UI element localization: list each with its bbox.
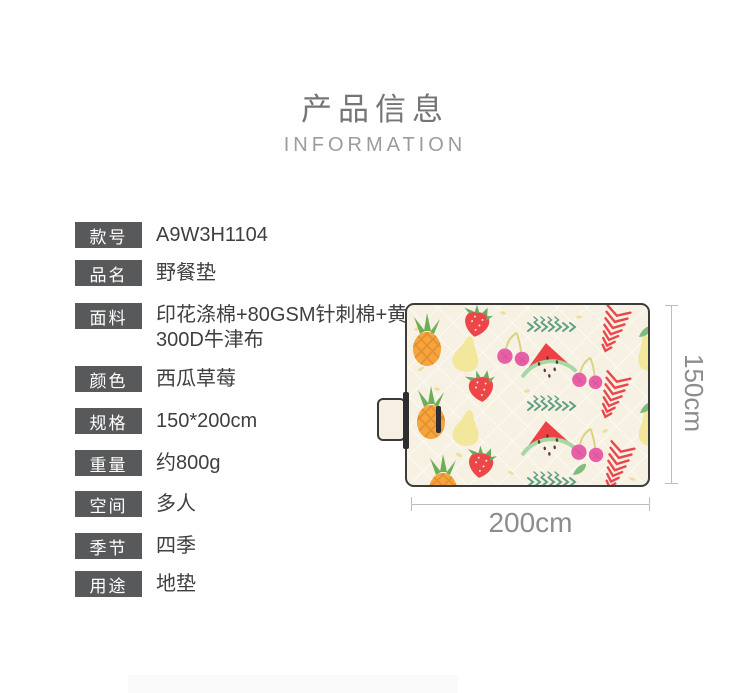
height-dimension-cap-bottom <box>665 483 678 484</box>
width-dimension-label: 200cm <box>411 507 650 539</box>
height-dimension-line <box>671 305 672 484</box>
height-dimension-label: 150cm <box>678 354 709 432</box>
page-title: 产品信息 <box>0 84 750 129</box>
spec-row-model: 款号 A9W3H1104 <box>75 222 268 248</box>
spec-label: 品名 <box>75 260 142 286</box>
spec-label: 规格 <box>75 408 142 434</box>
spec-row-weight: 重量 约800g <box>75 450 221 476</box>
spec-label: 颜色 <box>75 366 142 392</box>
spec-value: A9W3H1104 <box>156 222 268 248</box>
spec-value: 约800g <box>156 450 221 476</box>
spec-label: 面料 <box>75 303 142 329</box>
spec-value: 西瓜草莓 <box>156 366 236 392</box>
product-info-page: 产品信息 INFORMATION 款号 A9W3H1104 品名 野餐垫 面料 … <box>0 0 750 693</box>
spec-value: 野餐垫 <box>156 260 216 286</box>
spec-value: 地垫 <box>156 571 196 597</box>
product-image <box>405 303 650 487</box>
spec-value: 四季 <box>156 533 196 559</box>
spec-row-capacity: 空间 多人 <box>75 491 196 517</box>
spec-label: 季节 <box>75 533 142 559</box>
spec-row-color: 颜色 西瓜草莓 <box>75 366 236 392</box>
spec-label: 空间 <box>75 491 142 517</box>
width-dimension-line <box>411 504 650 505</box>
spec-value: 150*200cm <box>156 408 257 434</box>
page-subtitle: INFORMATION <box>0 134 750 157</box>
spec-value: 多人 <box>156 491 196 517</box>
spec-label: 重量 <box>75 450 142 476</box>
spec-row-size: 规格 150*200cm <box>75 408 257 434</box>
spec-row-fabric: 面料 印花涤棉+80GSM针刺棉+黄色300D牛津布 <box>75 303 438 353</box>
spec-row-name: 品名 野餐垫 <box>75 260 216 286</box>
mat-strap <box>403 392 409 449</box>
spec-row-usage: 用途 地垫 <box>75 571 196 597</box>
mat-carry-flap <box>377 398 406 441</box>
spec-label: 款号 <box>75 222 142 248</box>
height-dimension-cap-top <box>665 305 678 306</box>
spec-value: 印花涤棉+80GSM针刺棉+黄色300D牛津布 <box>156 303 438 353</box>
spec-label: 用途 <box>75 571 142 597</box>
picnic-mat-illustration <box>407 305 648 485</box>
mat-strap-buckle <box>436 406 441 433</box>
spec-row-season: 季节 四季 <box>75 533 196 559</box>
next-section-edge <box>128 675 458 693</box>
